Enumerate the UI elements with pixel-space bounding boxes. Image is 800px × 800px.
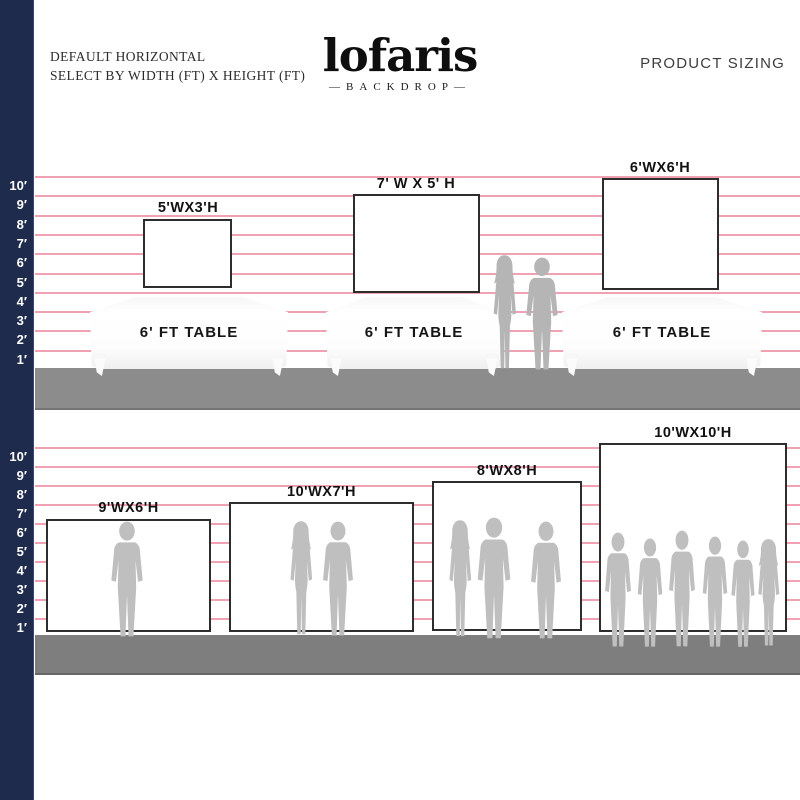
table: 6' FT TABLE bbox=[90, 297, 288, 369]
ruler-tick: 1′ bbox=[0, 620, 27, 635]
ruler-tick: 4′ bbox=[0, 563, 27, 578]
ruler-tick: 5′ bbox=[0, 275, 27, 290]
backdrop-6x6 bbox=[602, 178, 719, 290]
ruler-tick: 9′ bbox=[0, 468, 27, 483]
page-title: PRODUCT SIZING bbox=[630, 55, 785, 72]
table-label: 6' FT TABLE bbox=[326, 324, 502, 341]
table-label: 6' FT TABLE bbox=[90, 324, 288, 341]
ruler-tick: 9′ bbox=[0, 197, 27, 212]
woman-silhouette bbox=[283, 520, 319, 639]
ruler-tick: 7′ bbox=[0, 236, 27, 251]
brand-logo: lofaris —BACKDROP— bbox=[290, 33, 510, 93]
backdrop-size-label: 6'WX6'H bbox=[590, 160, 730, 176]
table-label: 6' FT TABLE bbox=[562, 324, 762, 341]
woman-silhouette bbox=[751, 538, 786, 650]
ruler-tick: 8′ bbox=[0, 487, 27, 502]
woman-silhouette bbox=[486, 254, 523, 373]
header-line2: SELECT BY WIDTH (FT) X HEIGHT (FT) bbox=[50, 66, 305, 85]
brand-logo-subtitle: —BACKDROP— bbox=[290, 81, 510, 93]
backdrop-size-label: 8'WX8'H bbox=[447, 463, 567, 479]
ruler-tick: 2′ bbox=[0, 332, 27, 347]
header-left-text: DEFAULT HORIZONTAL SELECT BY WIDTH (FT) … bbox=[50, 47, 305, 85]
ruler-tick: 2′ bbox=[0, 601, 27, 616]
ruler-tick: 5′ bbox=[0, 544, 27, 559]
header-line1: DEFAULT HORIZONTAL bbox=[50, 47, 305, 66]
man-silhouette bbox=[316, 521, 360, 639]
man-silhouette bbox=[470, 517, 518, 642]
product-sizing-chart: DEFAULT HORIZONTAL SELECT BY WIDTH (FT) … bbox=[0, 0, 800, 800]
man-silhouette bbox=[663, 530, 701, 650]
backdrop-7x5 bbox=[353, 194, 480, 293]
backdrop-size-label: 7' W X 5' H bbox=[341, 176, 491, 192]
backdrop-size-label: 9'WX6'H bbox=[66, 500, 191, 516]
backdrop-5x3 bbox=[143, 219, 232, 288]
ruler-tick: 10′ bbox=[0, 449, 27, 464]
table: 6' FT TABLE bbox=[562, 297, 762, 369]
left-ruler-bar bbox=[0, 0, 34, 800]
ruler-tick: 8′ bbox=[0, 217, 27, 232]
man-silhouette bbox=[524, 521, 568, 642]
ruler-tick: 1′ bbox=[0, 352, 27, 367]
ruler-tick: 4′ bbox=[0, 294, 27, 309]
backdrop-size-label: 10'WX10'H bbox=[628, 425, 758, 441]
ruler-tick: 10′ bbox=[0, 178, 27, 193]
ruler-tick: 3′ bbox=[0, 313, 27, 328]
ruler-tick: 6′ bbox=[0, 255, 27, 270]
ruler-tick: 7′ bbox=[0, 506, 27, 521]
man-silhouette bbox=[104, 521, 150, 640]
table: 6' FT TABLE bbox=[326, 297, 502, 369]
backdrop-size-label: 10'WX7'H bbox=[259, 484, 384, 500]
ruler-tick: 6′ bbox=[0, 525, 27, 540]
backdrop-size-label: 5'WX3'H bbox=[123, 200, 253, 216]
ruler-tick: 3′ bbox=[0, 582, 27, 597]
man-silhouette bbox=[519, 257, 565, 373]
floor-strip-top bbox=[35, 368, 800, 410]
brand-logo-title: lofaris bbox=[290, 33, 510, 79]
